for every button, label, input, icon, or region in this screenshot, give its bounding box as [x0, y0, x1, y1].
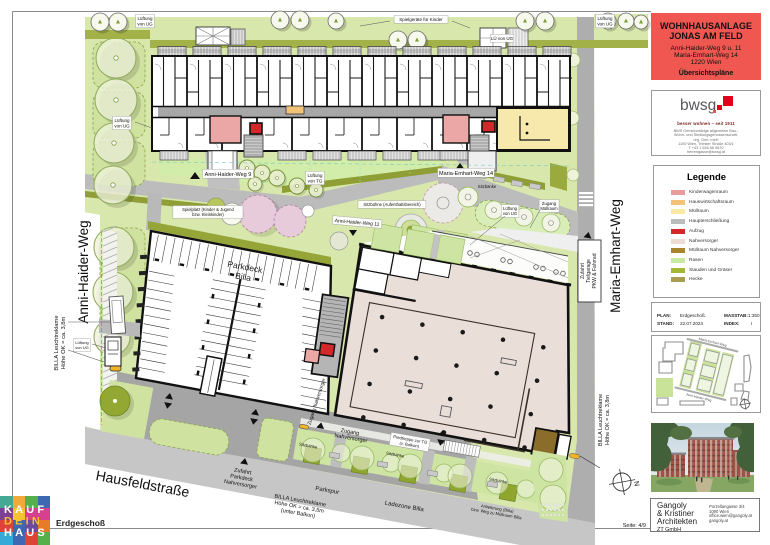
svg-text:Spielgeräte für Kinder: Spielgeräte für Kinder	[399, 17, 443, 22]
svg-text:N: N	[632, 481, 640, 487]
svg-text:Höhe OK = ca. 3,8m: Höhe OK = ca. 3,8m	[605, 395, 611, 445]
svg-text:Maria-Emhart-Weg 14: Maria-Emhart-Weg 14	[439, 171, 493, 177]
svg-text:Lüftung: Lüftung	[307, 173, 323, 178]
svg-text:Lüftung: Lüftung	[137, 16, 153, 21]
svg-text:LÜ von UG: LÜ von UG	[491, 35, 514, 41]
svg-text:DEIN: DEIN	[4, 516, 43, 528]
svg-text:von UG: von UG	[114, 124, 130, 129]
svg-text:von UG: von UG	[597, 22, 613, 27]
svg-text:Anni-Haider-Weg: Anni-Haider-Weg	[76, 220, 91, 323]
svg-text:Höhe OK = ca. 3,8m: Höhe OK = ca. 3,8m	[61, 316, 67, 369]
svg-text:von UG: von UG	[75, 345, 89, 350]
svg-text:von TG: von TG	[308, 179, 323, 184]
svg-text:Müllraum: Müllraum	[540, 206, 558, 211]
svg-text:Maria-Emhart-Weg: Maria-Emhart-Weg	[608, 199, 623, 313]
svg-text:von UG: von UG	[503, 211, 517, 216]
svg-text:Anni-Haider-Weg 9: Anni-Haider-Weg 9	[205, 172, 252, 178]
svg-text:Sitzbänke: Sitzbänke	[478, 184, 497, 189]
svg-text:PKW & Fahrrad: PKW & Fahrrad	[592, 253, 598, 288]
svg-text:BILLA Leuchtreklame: BILLA Leuchtreklame	[54, 315, 60, 370]
svg-text:Seite: 4/9: Seite: 4/9	[623, 523, 646, 529]
svg-text:BILLA Leuchtreklame: BILLA Leuchtreklame	[598, 394, 604, 446]
svg-text:Lüftung: Lüftung	[597, 16, 613, 21]
svg-text:Lüftung: Lüftung	[114, 118, 130, 123]
svg-text:HAUS: HAUS	[4, 527, 48, 539]
svg-text:KAUF: KAUF	[4, 504, 47, 516]
svg-text:bzw. Kleinkinder): bzw. Kleinkinder)	[192, 212, 224, 217]
svg-text:Sitzbühne (Aufenthaltsbereich): Sitzbühne (Aufenthaltsbereich)	[363, 202, 421, 207]
svg-text:von UG: von UG	[137, 22, 153, 27]
